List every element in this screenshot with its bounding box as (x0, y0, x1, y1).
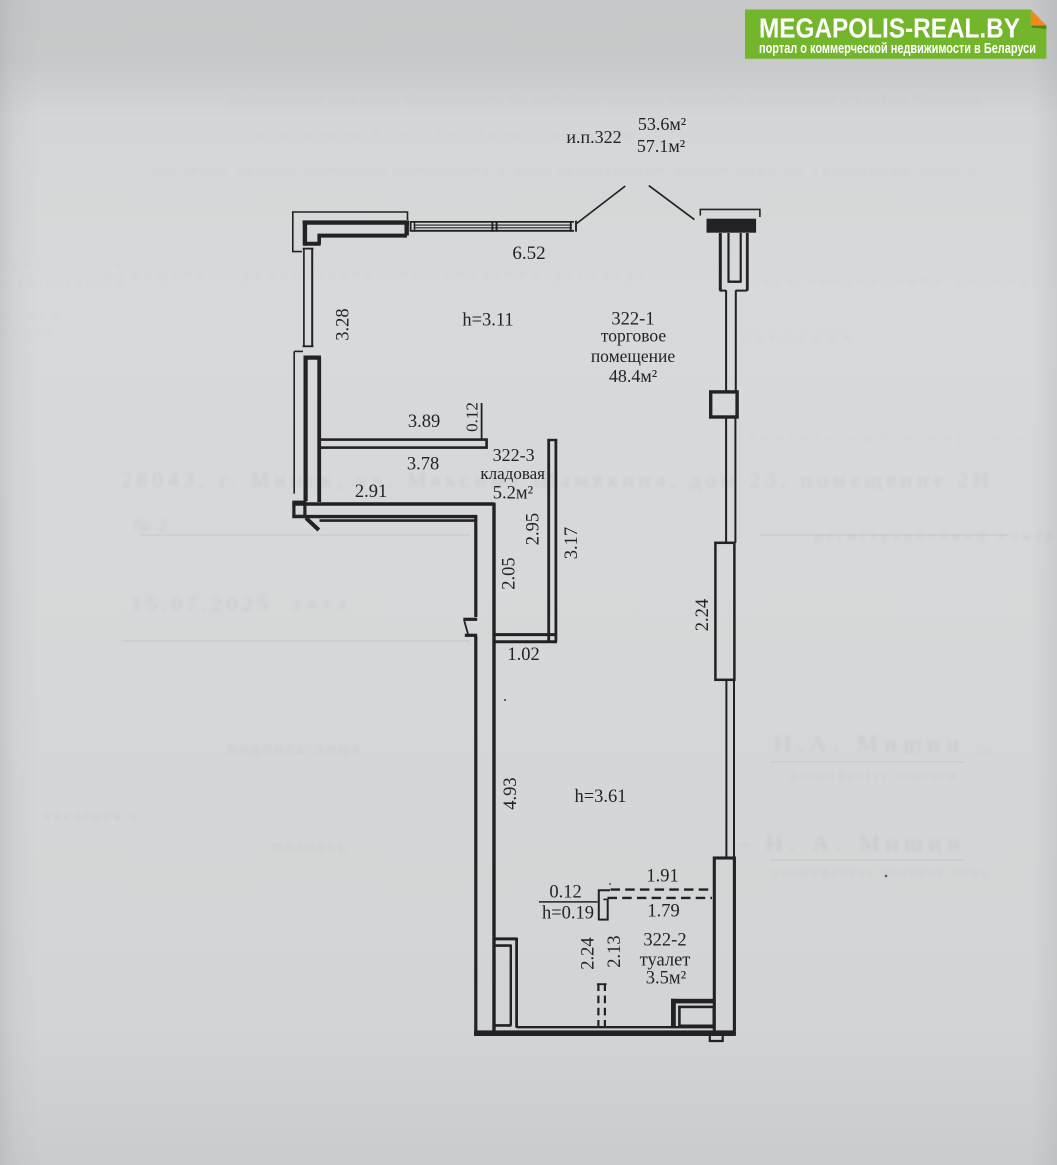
svg-text:дата: дата (292, 596, 346, 613)
svg-text:портал о коммерческой недвижим: портал о коммерческой недвижимости в Бел… (759, 40, 1036, 57)
svg-text:2.95: 2.95 (524, 513, 544, 545)
svg-text:3.28: 3.28 (334, 308, 354, 340)
svg-text:4.93: 4.93 (501, 777, 521, 809)
svg-text:подпись: подпись (273, 838, 345, 855)
svg-text:2.91: 2.91 (355, 482, 387, 502)
svg-text:туалет: туалет (640, 951, 691, 971)
svg-text:48.4м²: 48.4м² (609, 366, 657, 386)
svg-text:инвентарный номер дела: инвентарный номер дела (748, 431, 1025, 446)
svg-text:кладовая: кладовая (480, 464, 545, 483)
svg-text:6.52: 6.52 (512, 243, 545, 264)
svg-text:торговое: торговое (601, 326, 667, 346)
svg-text:1.79: 1.79 (647, 902, 679, 922)
svg-text:322-3: 322-3 (493, 445, 535, 465)
svg-text:пользование нежилым помещением: пользование нежилым помещением по догово… (228, 92, 980, 108)
svg-text:2.24: 2.24 (693, 599, 713, 631)
svg-text:3.89: 3.89 (408, 412, 440, 432)
svg-text:1.91: 1.91 (646, 867, 678, 887)
svg-text:h=3.61: h=3.61 (574, 787, 626, 807)
svg-text:1.02: 1.02 (507, 645, 539, 665)
svg-text:3.78: 3.78 (407, 455, 439, 475)
svg-text:листа: листа (2, 324, 52, 339)
svg-text:номер: номер (2, 306, 58, 321)
svg-text:2.05: 2.05 (500, 557, 520, 589)
svg-text:15.07.2025: 15.07.2025 (131, 591, 268, 616)
svg-text:0.12: 0.12 (549, 883, 581, 903)
svg-text:сведения о: сведения о (45, 809, 137, 824)
svg-text:сведения: сведения (742, 330, 851, 345)
svg-text:57.1м²: 57.1м² (637, 136, 685, 156)
svg-text:2.24: 2.24 (579, 937, 599, 969)
svg-text:Н.А. Мишин: Н.А. Мишин (774, 732, 959, 758)
svg-text:h=3.11: h=3.11 (462, 311, 513, 331)
svg-text:помещение: помещение (591, 346, 676, 366)
svg-text:—: — (977, 741, 997, 761)
svg-text:h=0.19: h=0.19 (542, 904, 594, 924)
svg-text:расшифровка подписи лица: расшифровка подписи лица (773, 865, 987, 879)
svg-text:№2: №2 (133, 515, 167, 535)
svg-text:3.5м²: 3.5м² (646, 969, 687, 989)
svg-text:322-2: 322-2 (643, 931, 686, 951)
svg-text:договора аренды нежилого помещ: договора аренды нежилого помещения в мно… (152, 162, 975, 178)
svg-text:2.13: 2.13 (605, 935, 625, 967)
svg-text:регистрационный номер: регистрационный номер (815, 529, 1053, 544)
svg-text:свидетельство: свидетельство (2, 256, 132, 271)
svg-text:дата составления паспорта: дата составления паспорта (750, 273, 1053, 288)
svg-text:- Н. А. Мишин: - Н. А. Мишин (740, 831, 960, 857)
svg-text:5.2м²: 5.2м² (493, 484, 534, 504)
svg-text:3.17: 3.17 (562, 527, 582, 559)
svg-text:расшифровка подписи: расшифровка подписи (791, 768, 956, 782)
svg-text:и.п.322: и.п.322 (566, 127, 621, 147)
svg-text:подпись лица: подпись лица (227, 738, 359, 758)
svg-text:53.6м²: 53.6м² (638, 114, 686, 134)
svg-text:помещение предоставлено на осн: помещение предоставлено на основании дог… (105, 267, 646, 282)
svg-text:0.12: 0.12 (463, 402, 482, 432)
